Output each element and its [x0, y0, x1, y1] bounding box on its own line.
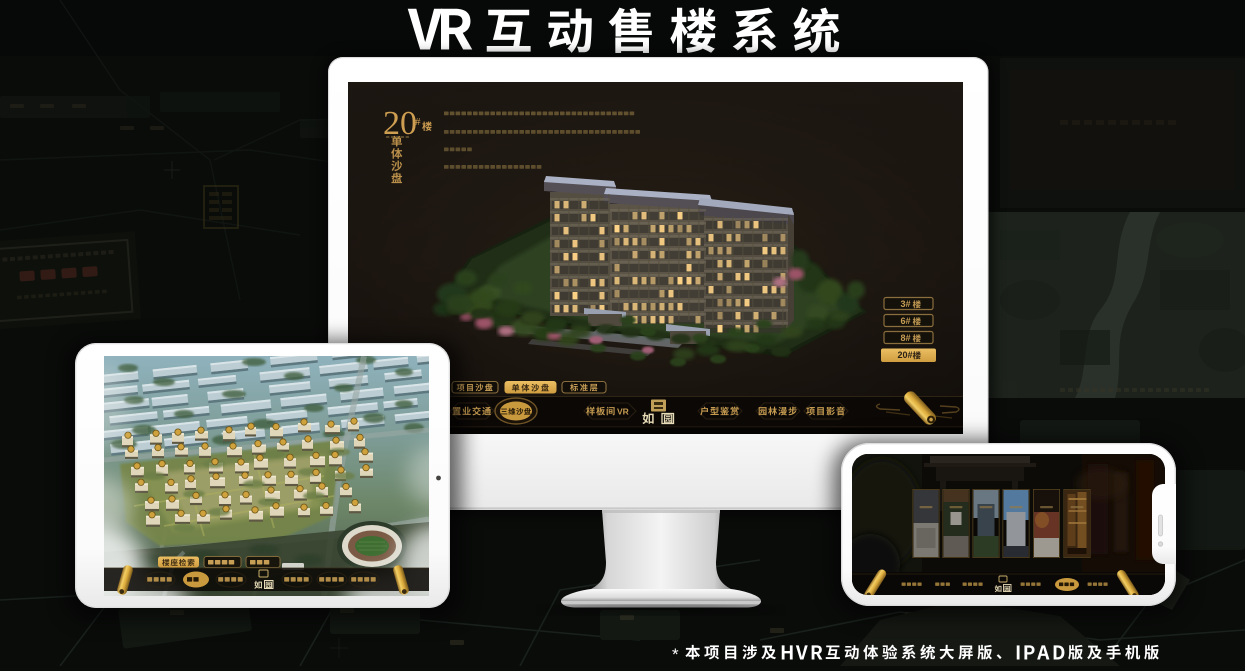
svg-text:3#: 3#	[901, 299, 911, 309]
svg-text:8#: 8#	[901, 333, 911, 343]
svg-text:#: #	[415, 116, 421, 128]
svg-text:*: *	[672, 645, 679, 664]
svg-text:VR: VR	[617, 407, 629, 417]
svg-text:6#: 6#	[901, 316, 911, 326]
svg-text:20#: 20#	[898, 350, 913, 360]
